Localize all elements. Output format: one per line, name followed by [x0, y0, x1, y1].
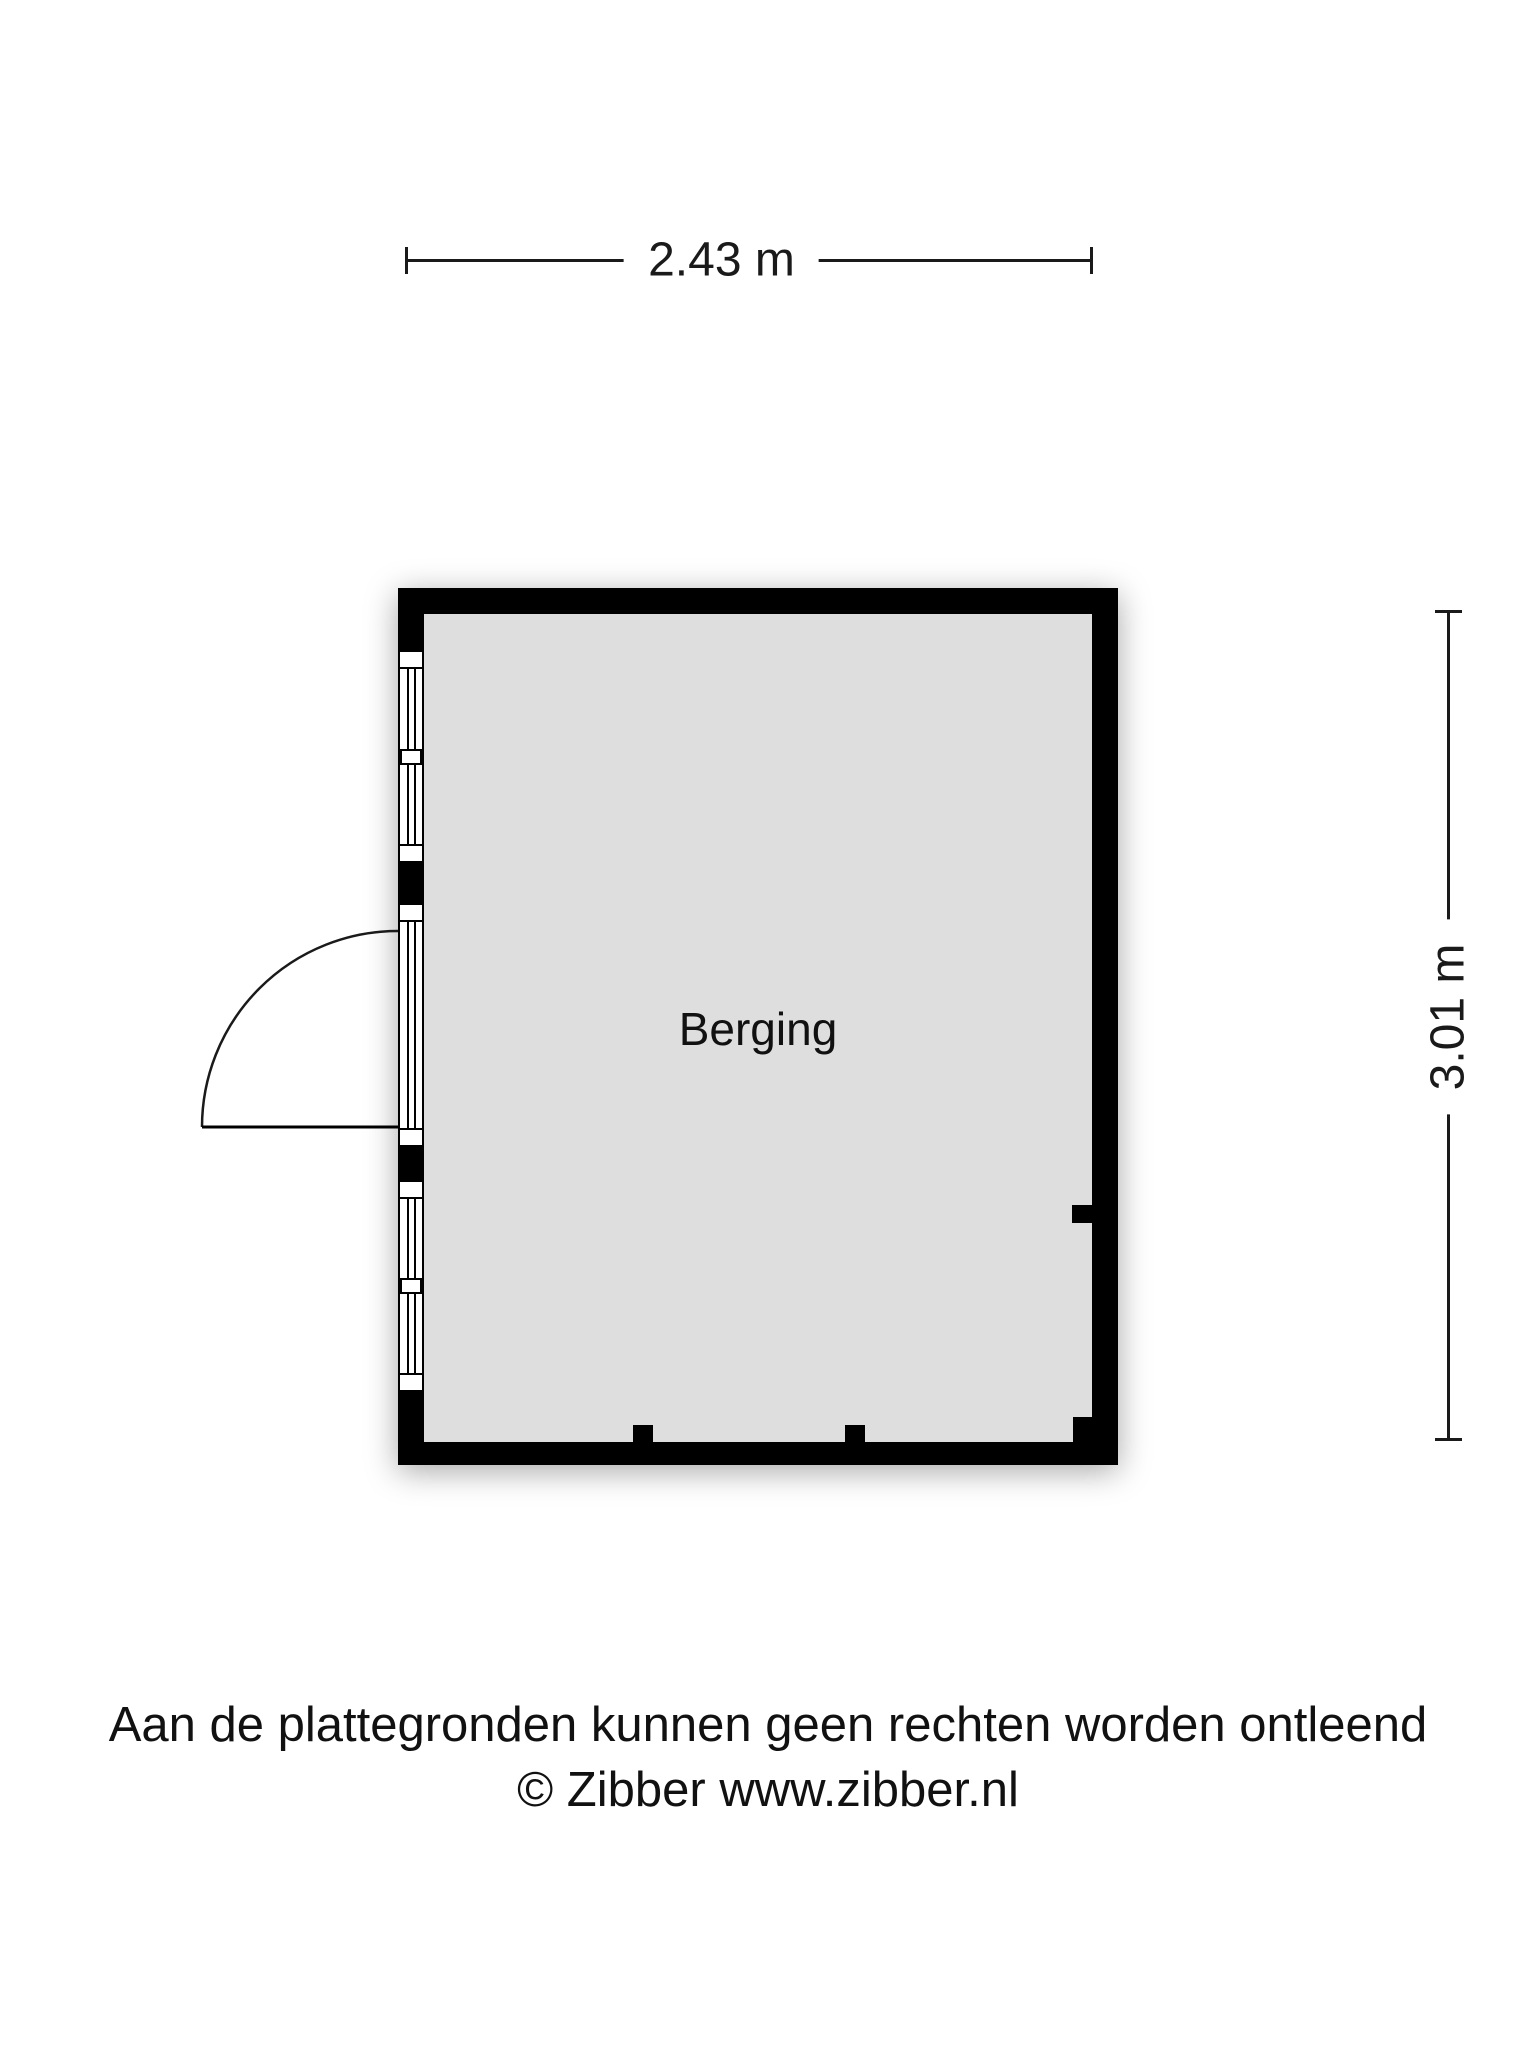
width-dimension-tick-left [405, 247, 408, 274]
width-dimension-tick-right [1090, 247, 1093, 274]
height-dimension-tick-bottom [1435, 1438, 1462, 1441]
door-frame [400, 1128, 422, 1145]
wall-notch-bottom-right [845, 1425, 865, 1442]
height-dimension-label: 3.01 m [1419, 920, 1478, 1115]
window-upper [398, 650, 424, 863]
window-lower [398, 1180, 424, 1392]
height-dimension-tick-top [1435, 610, 1462, 613]
window-sill [400, 844, 422, 861]
disclaimer-text: Aan de plattegronden kunnen geen rechten… [0, 1697, 1536, 1753]
wall-notch-bottom-left [633, 1425, 653, 1442]
door-swing-arc [202, 931, 398, 1127]
width-dimension: 2.43 m [405, 247, 1093, 274]
window-mullion [400, 749, 422, 765]
wall-notch-right [1072, 1205, 1092, 1223]
height-dimension: 3.01 m [1435, 610, 1462, 1441]
window-mullion [400, 1278, 422, 1294]
wall-notch-corner [1073, 1417, 1093, 1442]
door-glass [400, 922, 422, 1128]
width-dimension-label: 2.43 m [624, 231, 819, 290]
door-frame [400, 905, 422, 922]
window-sill [400, 652, 422, 669]
room-label: Berging [424, 1002, 1092, 1056]
copyright-text: © Zibber www.zibber.nl [0, 1762, 1536, 1818]
door-opening [398, 903, 424, 1147]
window-sill [400, 1182, 422, 1199]
window-sill [400, 1373, 422, 1390]
